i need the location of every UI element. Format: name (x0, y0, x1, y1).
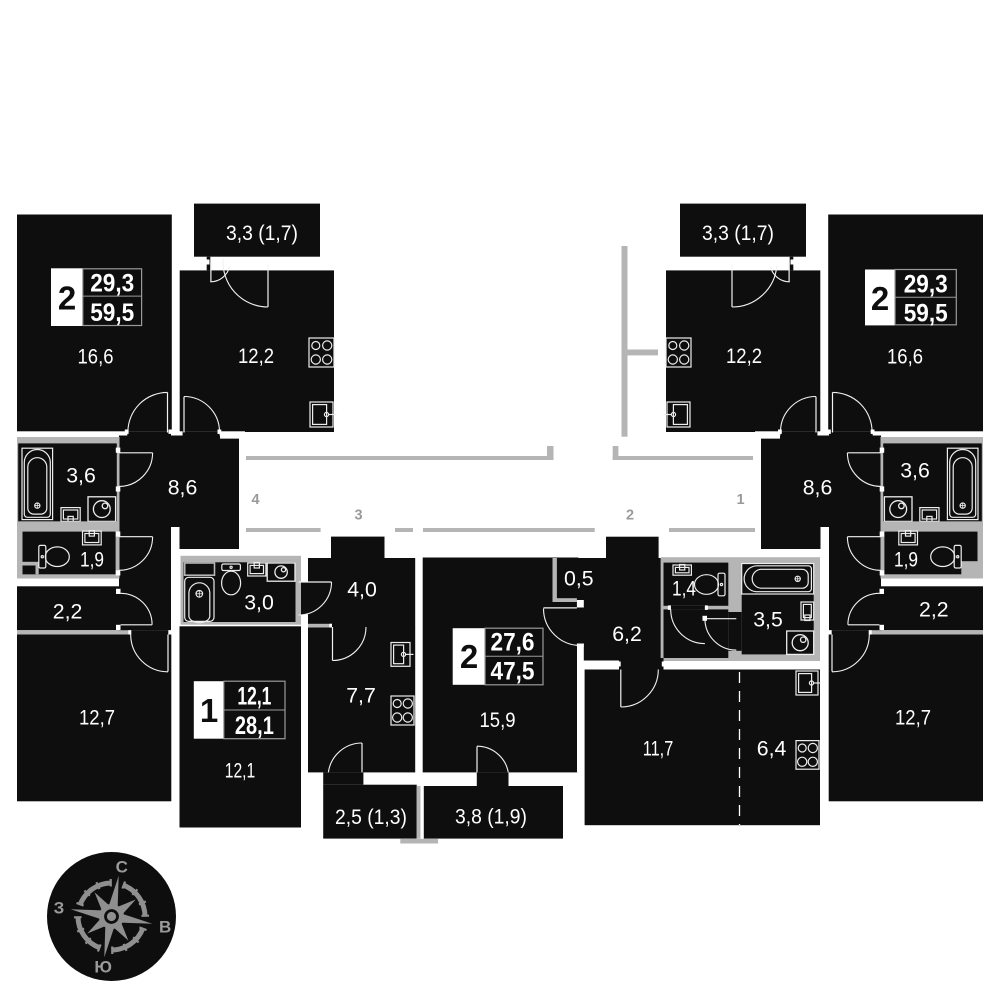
svg-text:59,5: 59,5 (904, 299, 948, 327)
svg-text:3,3 (1,7): 3,3 (1,7) (226, 221, 298, 245)
svg-text:12,2: 12,2 (726, 344, 762, 368)
svg-text:12,1: 12,1 (225, 759, 256, 783)
svg-text:2: 2 (626, 508, 634, 524)
svg-text:12,2: 12,2 (238, 344, 274, 368)
svg-text:3,5: 3,5 (753, 608, 783, 632)
svg-text:Ю: Ю (94, 958, 112, 977)
svg-text:1,9: 1,9 (894, 548, 918, 572)
svg-text:28,1: 28,1 (235, 712, 274, 740)
svg-text:0,5: 0,5 (564, 567, 594, 591)
svg-text:29,3: 29,3 (904, 270, 948, 298)
svg-text:3: 3 (354, 508, 362, 524)
svg-text:1,9: 1,9 (80, 548, 104, 572)
svg-text:27,6: 27,6 (491, 628, 535, 656)
svg-text:47,5: 47,5 (491, 658, 535, 686)
svg-text:12,1: 12,1 (237, 683, 271, 711)
svg-text:3,3 (1,7): 3,3 (1,7) (702, 221, 774, 245)
svg-text:11,7: 11,7 (643, 737, 674, 761)
svg-text:4: 4 (251, 492, 259, 508)
svg-text:3,0: 3,0 (244, 591, 274, 615)
svg-text:12,7: 12,7 (79, 706, 115, 730)
svg-text:2,2: 2,2 (919, 598, 949, 622)
svg-text:16,6: 16,6 (887, 345, 923, 369)
svg-text:6,2: 6,2 (612, 622, 642, 646)
svg-text:1: 1 (736, 492, 744, 508)
svg-text:12,7: 12,7 (895, 706, 931, 730)
svg-text:3,6: 3,6 (900, 459, 930, 483)
svg-text:8,6: 8,6 (803, 476, 833, 500)
svg-text:7,7: 7,7 (346, 684, 376, 708)
svg-text:2: 2 (58, 280, 76, 317)
svg-text:6,4: 6,4 (757, 737, 787, 761)
svg-text:3,6: 3,6 (66, 464, 96, 488)
svg-text:2,2: 2,2 (53, 600, 83, 624)
svg-text:29,3: 29,3 (90, 270, 134, 298)
svg-text:2: 2 (460, 638, 478, 675)
svg-text:З: З (54, 899, 65, 918)
svg-text:С: С (116, 858, 128, 877)
svg-text:2,5 (1,3): 2,5 (1,3) (335, 805, 407, 829)
svg-text:8,6: 8,6 (168, 476, 198, 500)
svg-text:1: 1 (200, 692, 218, 729)
svg-text:В: В (159, 918, 171, 937)
svg-text:3,8 (1,9): 3,8 (1,9) (455, 805, 527, 829)
svg-text:16,6: 16,6 (78, 345, 114, 369)
svg-text:1,4: 1,4 (672, 577, 696, 601)
svg-text:59,5: 59,5 (90, 299, 134, 327)
svg-text:4,0: 4,0 (347, 578, 377, 602)
svg-text:15,9: 15,9 (480, 708, 516, 732)
svg-text:2: 2 (871, 280, 889, 317)
